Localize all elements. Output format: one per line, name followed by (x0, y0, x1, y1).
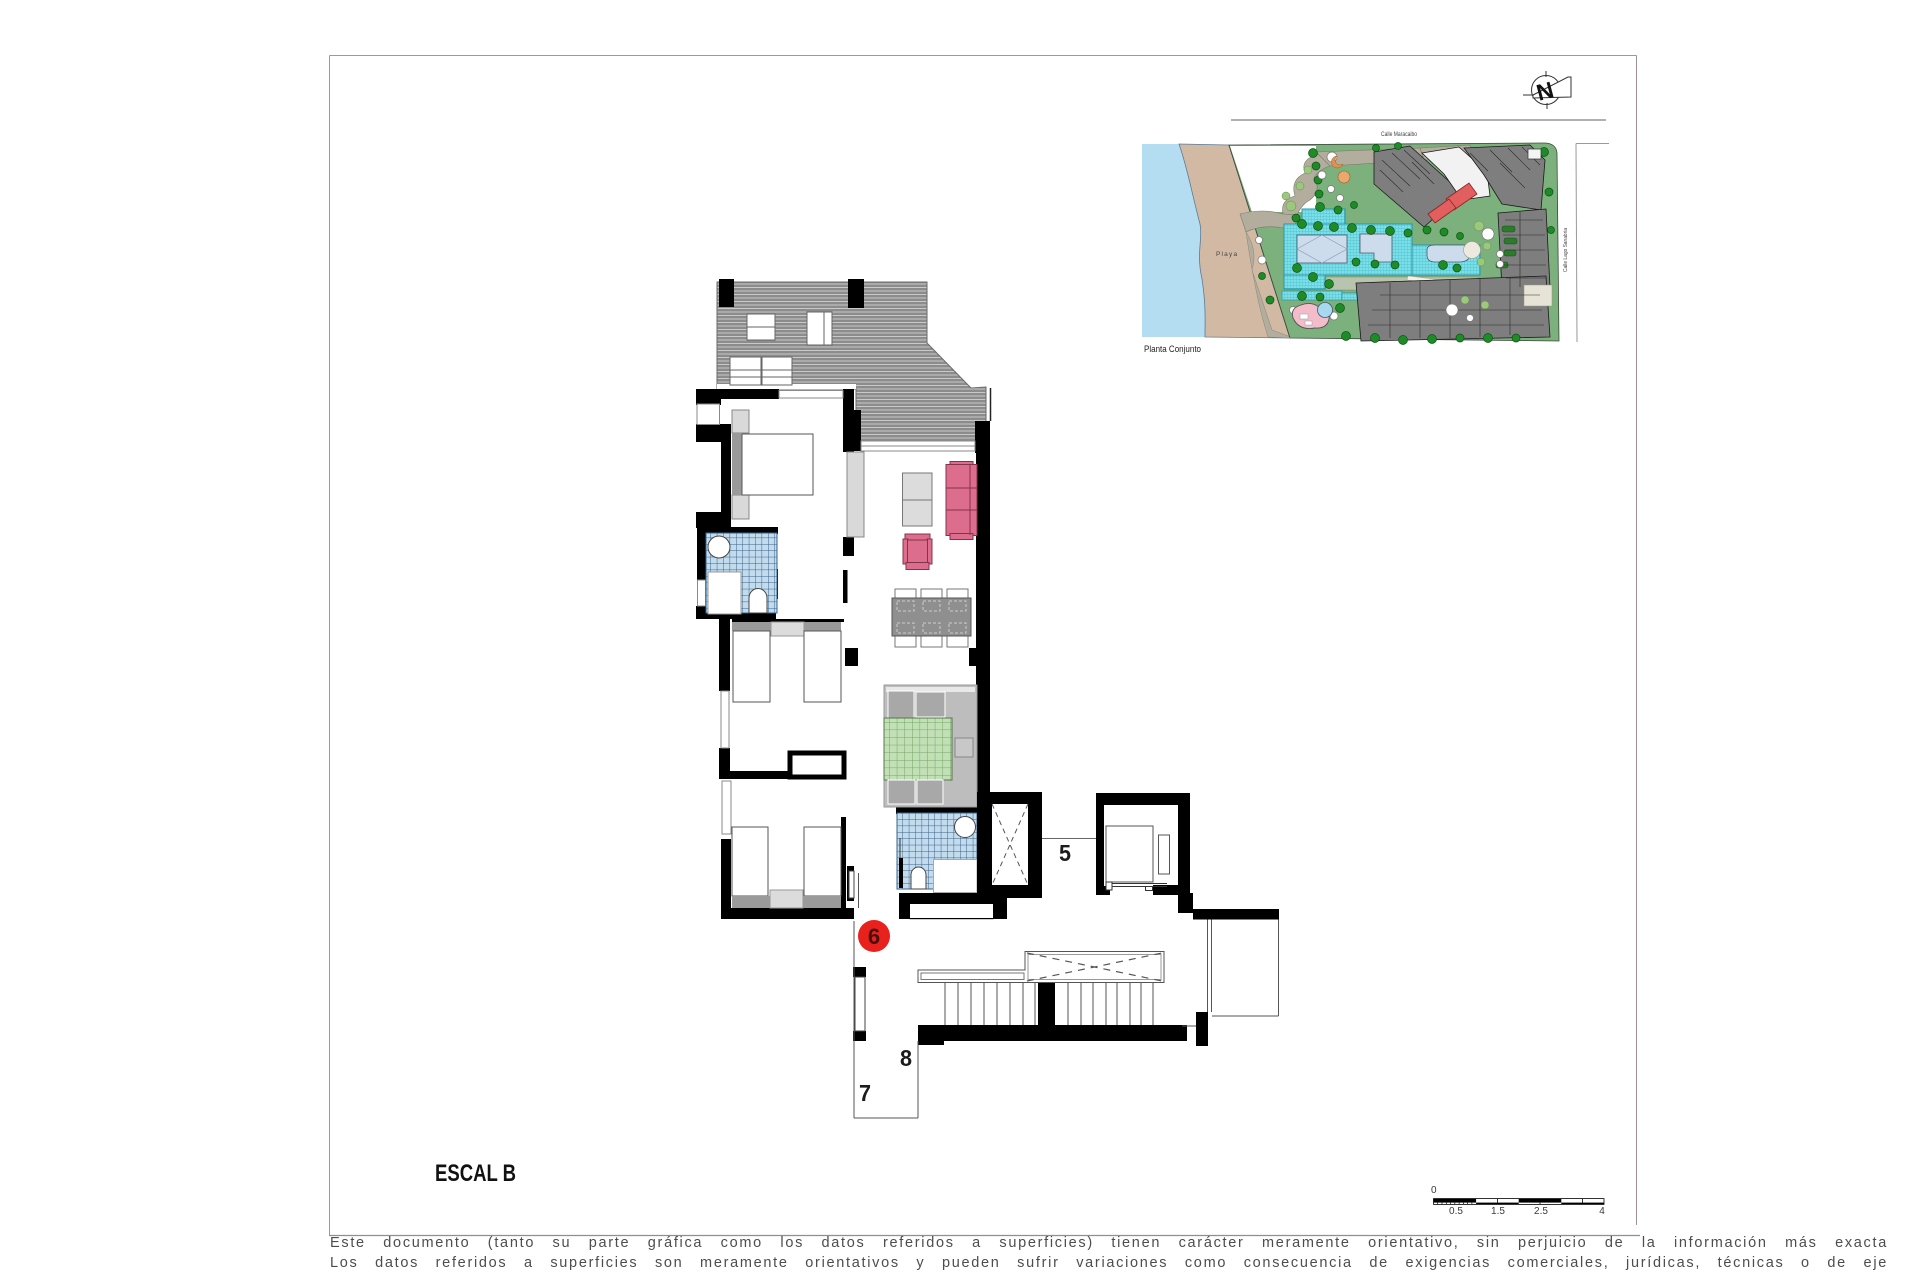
svg-text:7: 7 (859, 1080, 871, 1106)
svg-text:8: 8 (900, 1045, 912, 1071)
svg-text:0: 0 (1431, 1185, 1437, 1196)
svg-text:5: 5 (1059, 840, 1071, 866)
svg-text:6: 6 (868, 924, 880, 949)
svg-text:4: 4 (1599, 1206, 1605, 1217)
svg-text:Calle Maracaibo: Calle Maracaibo (1381, 131, 1417, 138)
svg-text:Playa: Playa (1216, 251, 1238, 258)
svg-text:Planta Conjunto: Planta Conjunto (1144, 344, 1201, 355)
svg-text:Calle Lago Sanabria: Calle Lago Sanabria (1563, 227, 1569, 272)
svg-text:1.5: 1.5 (1491, 1206, 1505, 1217)
svg-text:2.5: 2.5 (1534, 1206, 1548, 1217)
svg-text:0.5: 0.5 (1449, 1206, 1463, 1217)
svg-text:ESCAL B: ESCAL B (435, 1160, 516, 1187)
